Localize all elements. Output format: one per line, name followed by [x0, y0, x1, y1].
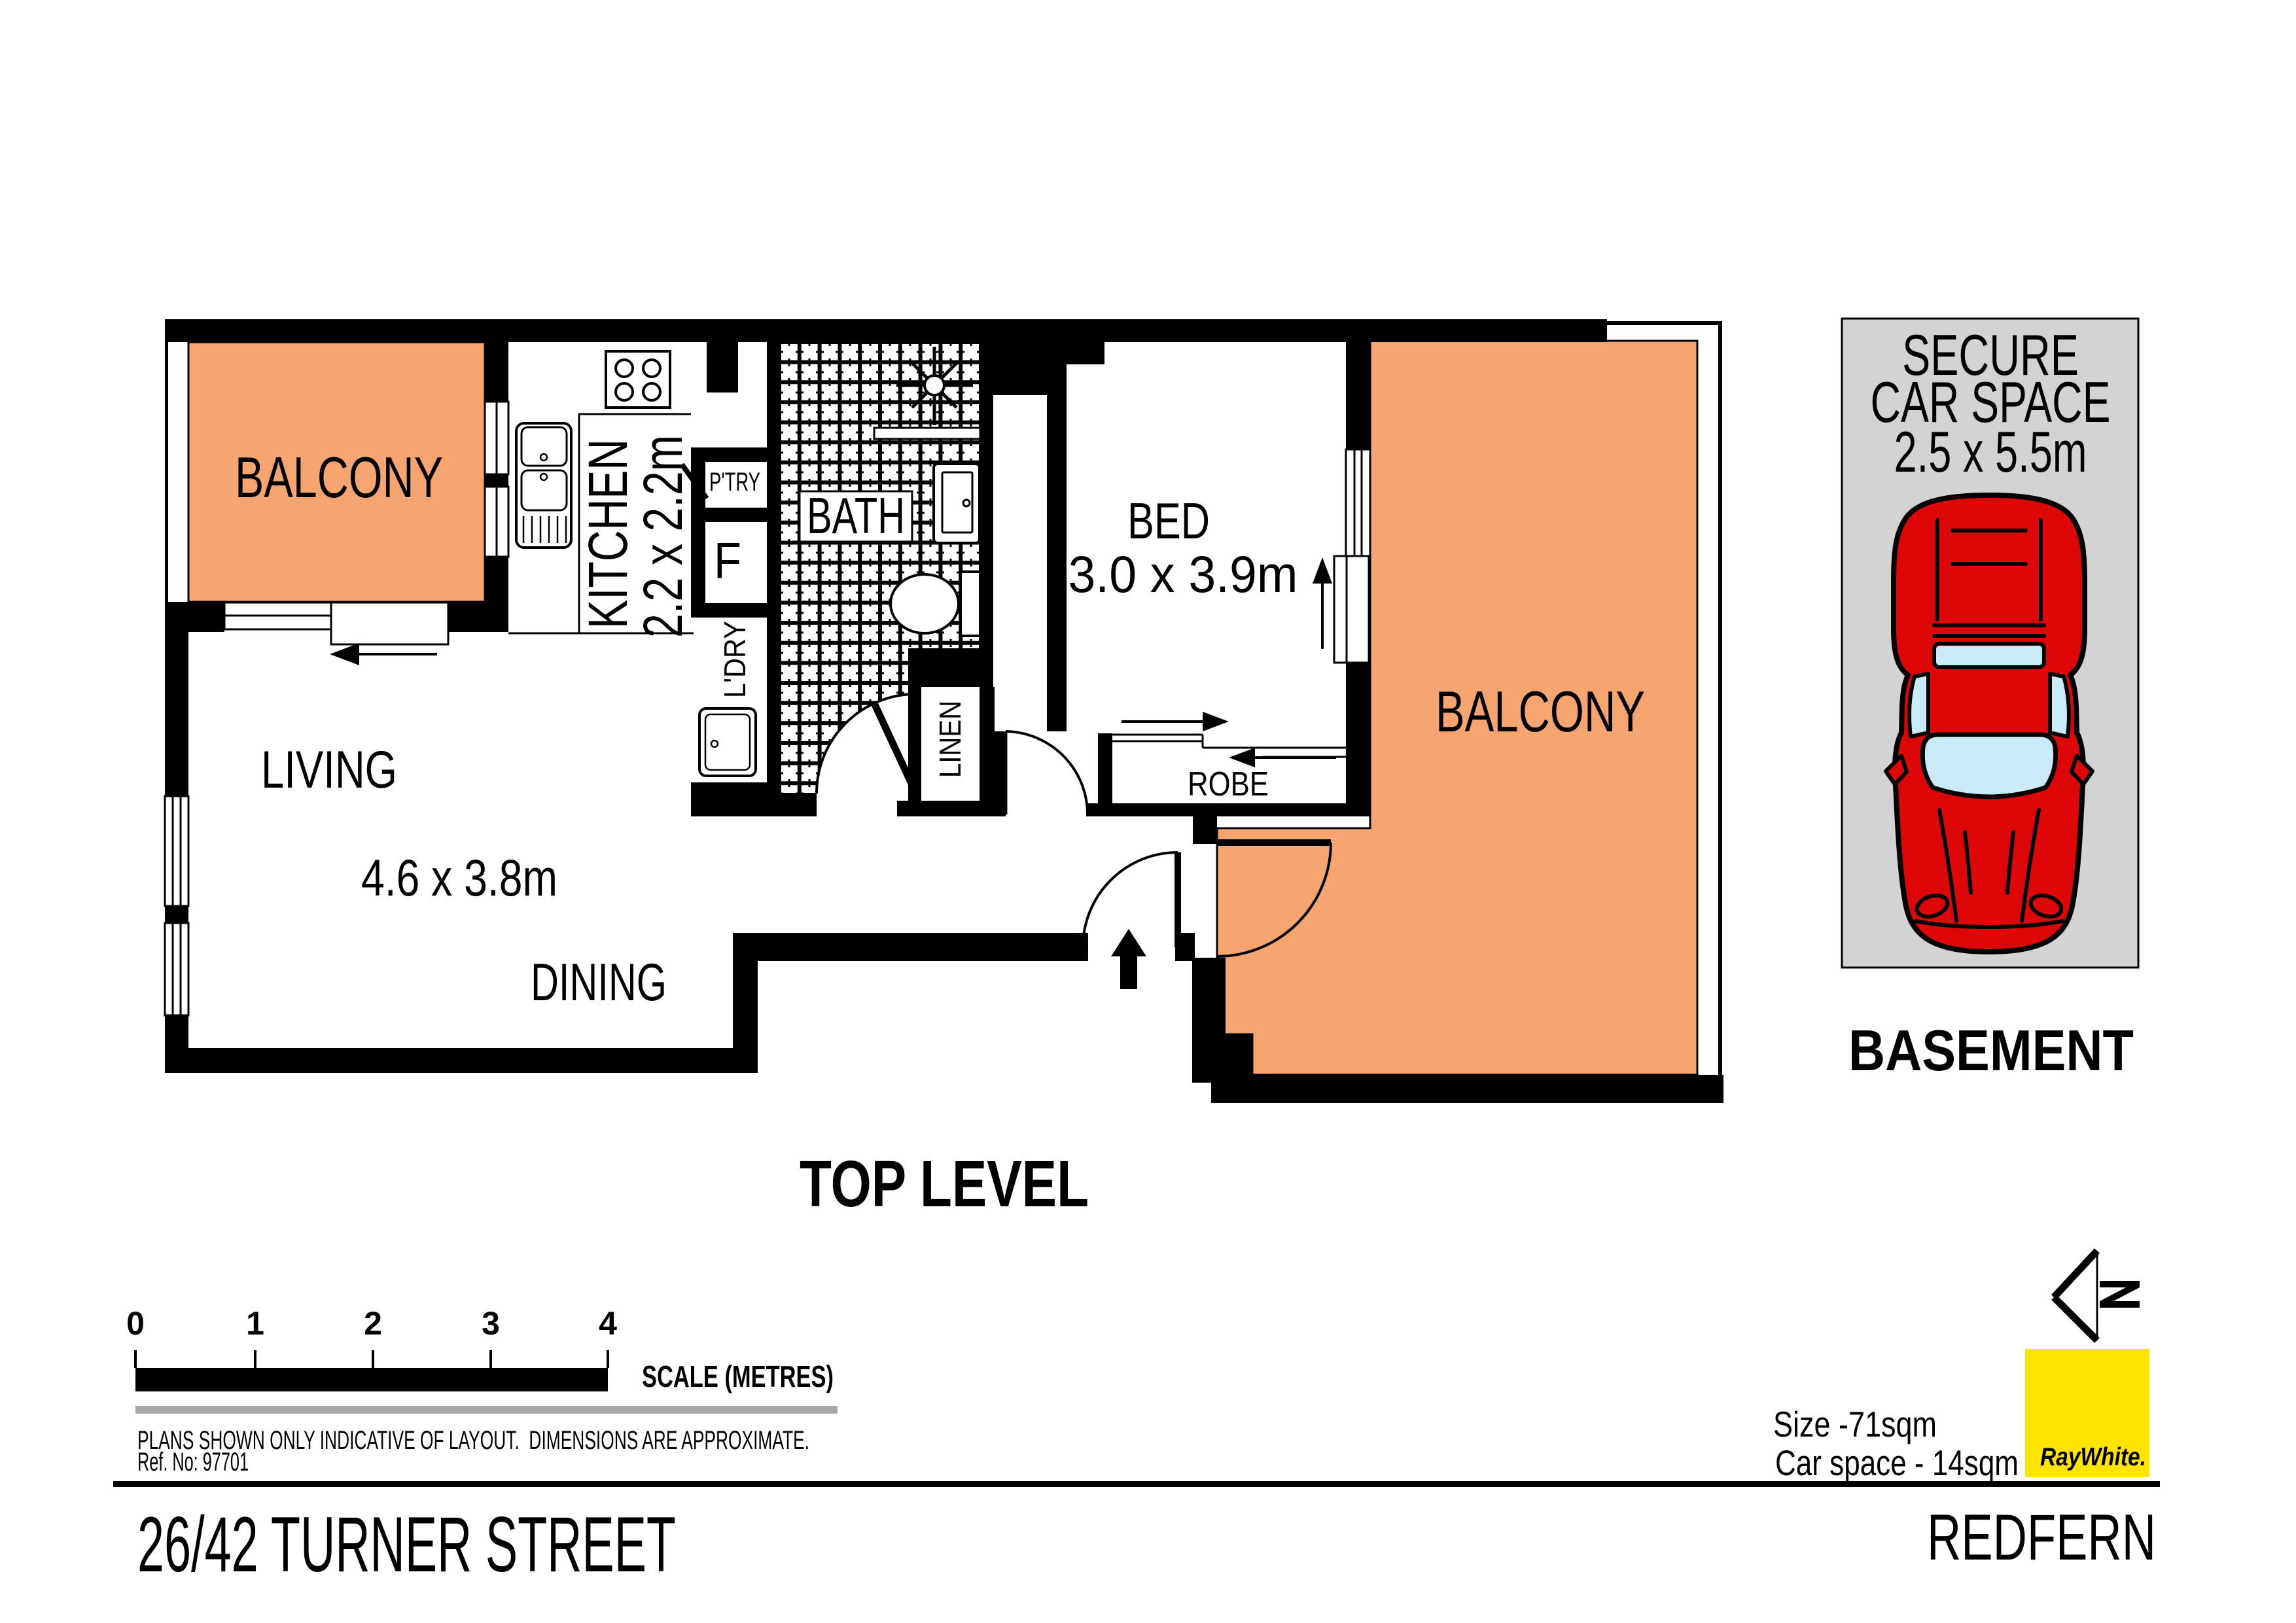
- svg-text:KITCHEN: KITCHEN: [577, 439, 639, 629]
- svg-text:P'TRY: P'TRY: [709, 468, 760, 497]
- svg-text:BATH: BATH: [807, 487, 905, 544]
- svg-text:RayWhite.: RayWhite.: [2040, 1443, 2146, 1471]
- svg-text:LINEN: LINEN: [933, 701, 967, 778]
- svg-text:TOP LEVEL: TOP LEVEL: [800, 1147, 1089, 1221]
- svg-text:4.6 x 3.8m: 4.6 x 3.8m: [361, 848, 557, 907]
- svg-text:1: 1: [246, 1305, 264, 1342]
- svg-text:BED: BED: [1127, 492, 1210, 550]
- svg-text:2.5 x 5.5m: 2.5 x 5.5m: [1894, 419, 2087, 484]
- svg-text:Car space - 14sqm: Car space - 14sqm: [1775, 1442, 2019, 1483]
- svg-text:DINING: DINING: [531, 953, 667, 1012]
- svg-text:3.0 x 3.9m: 3.0 x 3.9m: [1069, 545, 1298, 603]
- svg-text:Ref. No: 97701: Ref. No: 97701: [137, 1448, 249, 1476]
- svg-text:BALCONY: BALCONY: [1436, 679, 1645, 744]
- svg-text:REDFERN: REDFERN: [1927, 1501, 2156, 1573]
- svg-text:4: 4: [599, 1305, 617, 1342]
- svg-text:BALCONY: BALCONY: [235, 445, 443, 510]
- svg-text:LIVING: LIVING: [261, 741, 397, 799]
- svg-text:ROBE: ROBE: [1188, 765, 1269, 803]
- svg-text:L'DRY: L'DRY: [718, 621, 752, 698]
- svg-text:F: F: [714, 532, 741, 589]
- svg-text:26/42 TURNER STREET: 26/42 TURNER STREET: [137, 1501, 676, 1588]
- svg-text:2: 2: [364, 1305, 382, 1342]
- svg-text:Size -71sqm: Size -71sqm: [1773, 1404, 1937, 1444]
- svg-text:3: 3: [482, 1305, 500, 1342]
- svg-text:SCALE (METRES): SCALE (METRES): [642, 1359, 834, 1393]
- svg-text:BASEMENT: BASEMENT: [1848, 1018, 2134, 1083]
- svg-text:0: 0: [126, 1305, 145, 1342]
